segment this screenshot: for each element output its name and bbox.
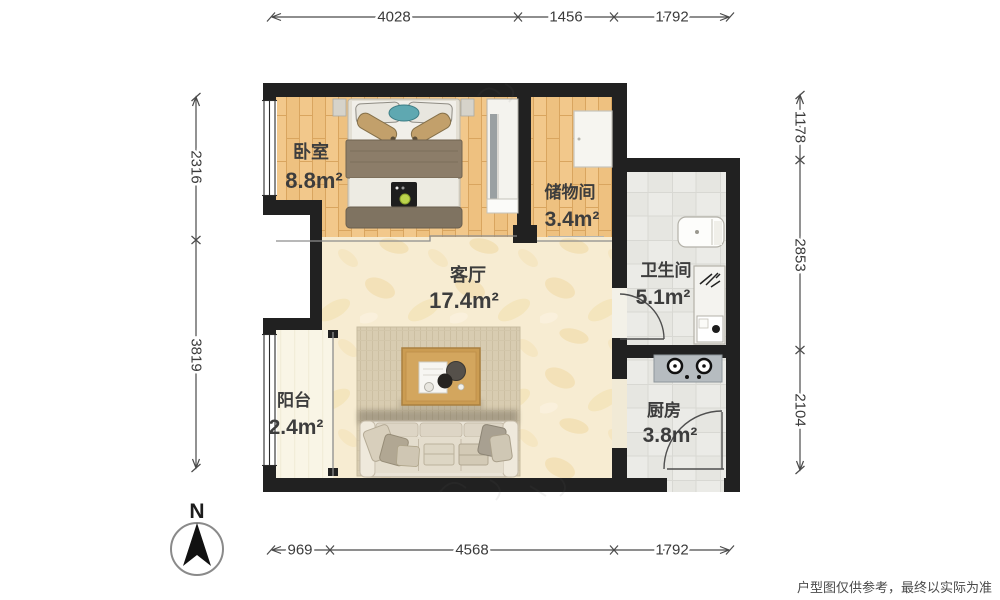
- compass-needle: [183, 523, 211, 566]
- kitchen-label: 厨房: [647, 400, 681, 420]
- bed: [333, 99, 474, 228]
- dim-left-1: 2316: [188, 150, 205, 183]
- wall-topright-horizontal: [612, 158, 740, 172]
- dim-bottom-2: 4568: [455, 542, 488, 559]
- dimension-left: 2316 3819: [188, 93, 205, 472]
- dim-top-3: 1792: [655, 9, 688, 26]
- balcony-window: [262, 334, 277, 466]
- dimension-top: 4028 1456 1792: [267, 9, 734, 26]
- wall-top: [263, 83, 627, 97]
- dim-top-1: 4028: [377, 9, 410, 26]
- floor-plan-page: 卧室 8.8m² 储物间 3.4m² 卫生间 5.1m² 客厅 17.4m² 阳…: [0, 0, 1000, 600]
- floor-plan-svg: 卧室 8.8m² 储物间 3.4m² 卫生间 5.1m² 客厅 17.4m² 阳…: [0, 0, 1000, 600]
- storage-cabinet: [574, 111, 612, 167]
- entrance-threshold-floor: [667, 478, 724, 492]
- kitchen-area: 3.8m²: [643, 424, 698, 447]
- bathroom-label: 卫生间: [641, 260, 692, 280]
- stove: [654, 355, 722, 382]
- table-cup: [458, 384, 464, 390]
- wall-right: [726, 158, 740, 492]
- sofa: [360, 421, 518, 477]
- wall-bottom-right: [724, 478, 740, 492]
- storage-label: 储物间: [545, 182, 596, 202]
- bedroom-window: [262, 100, 277, 196]
- dim-bottom-1: 969: [287, 542, 312, 559]
- disclaimer-text: 户型图仅供参考，最终以实际为准: [797, 580, 992, 595]
- teal-cushion: [389, 105, 419, 121]
- dim-right-3: 2104: [792, 393, 809, 426]
- storage-area: 3.4m²: [545, 208, 600, 231]
- wall-divider-foot: [513, 225, 537, 243]
- balcony-area: 2.4m²: [269, 416, 324, 439]
- bath-door-gap: [612, 288, 627, 338]
- dim-right-1: 1178: [792, 111, 809, 143]
- bedroom-label: 卧室: [293, 141, 329, 162]
- nightstand-right: [461, 99, 474, 116]
- toilet: [678, 217, 724, 247]
- kitchen-door-gap: [612, 379, 627, 448]
- bed-speaker: [391, 182, 417, 207]
- wall-kitchen-left-stub: [612, 448, 627, 478]
- living-label: 客厅: [450, 264, 486, 285]
- dim-bottom-3: 1792: [655, 542, 688, 559]
- wall-bedroom-storage-divider: [517, 97, 531, 225]
- dim-right-2: 2853: [792, 238, 809, 271]
- balcony-label: 阳台: [277, 390, 311, 410]
- living-area: 17.4m²: [429, 288, 499, 313]
- bathroom-vanity: [694, 266, 725, 344]
- bedroom-wardrobe: [487, 99, 518, 213]
- wall-bathroom-left-lower: [612, 338, 627, 379]
- bedroom-area: 8.8m²: [285, 168, 342, 193]
- wall-bottom-left: [263, 478, 667, 492]
- wall-leftnotch-vertical: [310, 200, 322, 330]
- table-bowl-small: [438, 374, 453, 389]
- dim-top-2: 1456: [549, 9, 582, 26]
- dim-left-2: 3819: [188, 338, 205, 371]
- bed-blanket: [346, 140, 462, 178]
- dimension-right: 1178 2853 2104: [792, 91, 809, 474]
- north-compass: N: [171, 500, 223, 575]
- north-label: N: [189, 500, 204, 523]
- wall-bathroom-left-upper: [612, 172, 627, 288]
- nightstand-left: [333, 99, 346, 116]
- coffee-table: [399, 348, 483, 409]
- bathroom-area: 5.1m²: [636, 286, 691, 309]
- dimension-bottom: 969 4568 1792: [267, 542, 734, 559]
